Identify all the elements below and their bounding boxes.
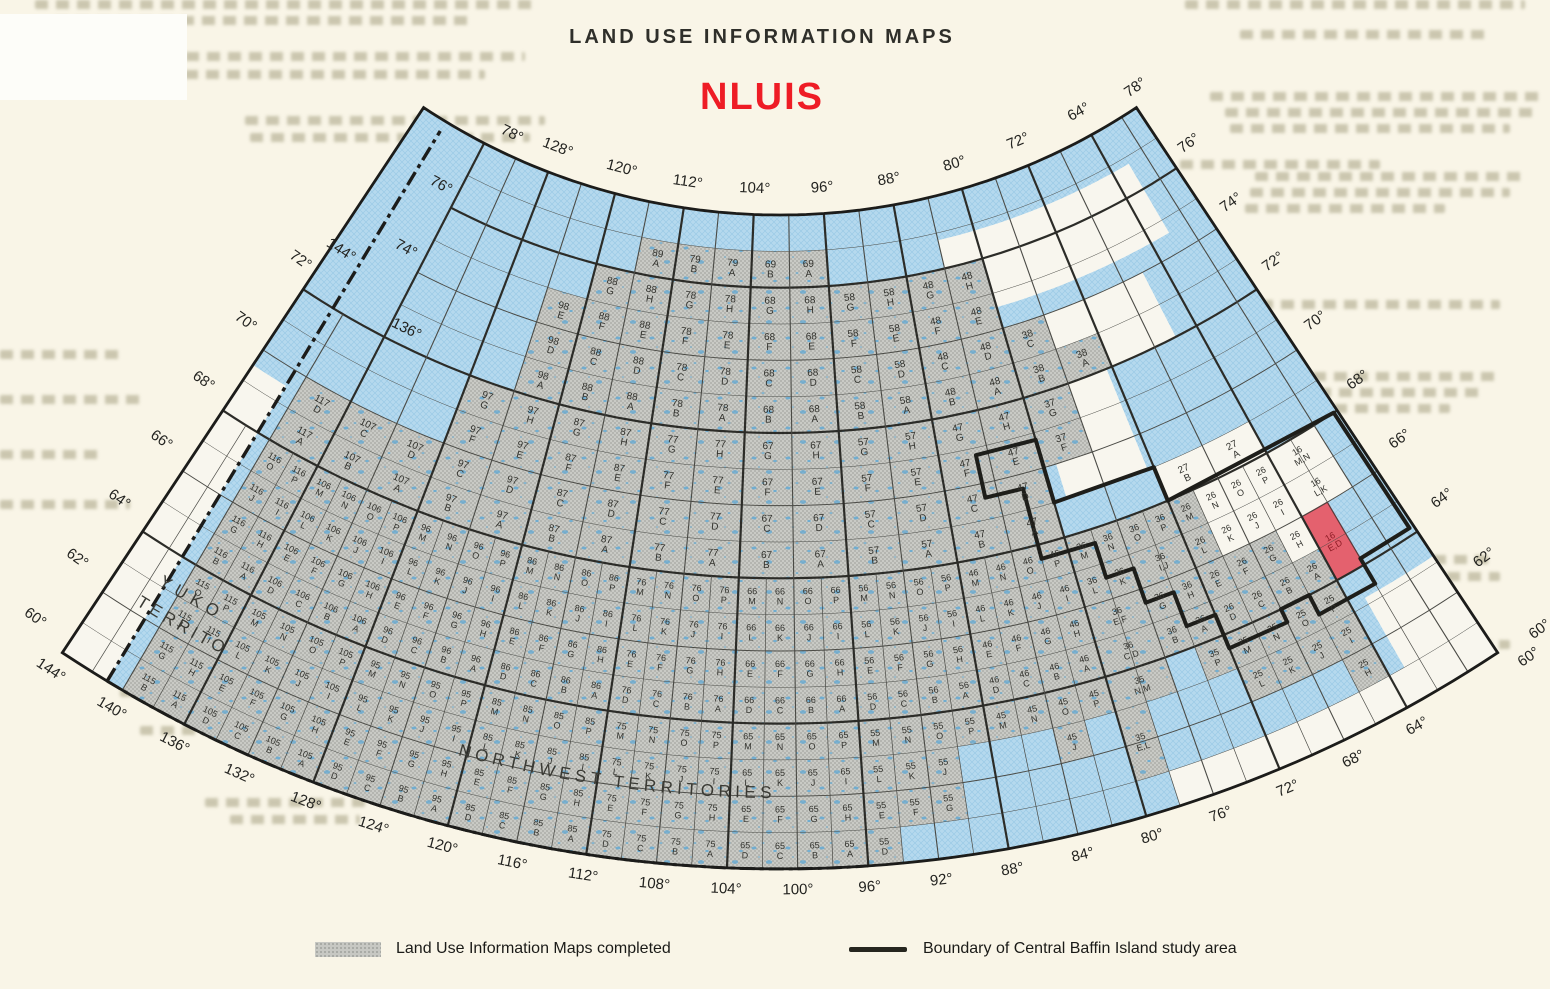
svg-text:116°: 116° (496, 851, 529, 874)
page-title: LAND USE INFORMATION MAPS (0, 26, 1524, 49)
svg-text:88°: 88° (1000, 859, 1025, 880)
svg-text:92°: 92° (929, 870, 954, 890)
svg-text:104°: 104° (739, 179, 771, 197)
svg-text:120°: 120° (425, 834, 459, 858)
svg-text:96°: 96° (810, 178, 834, 197)
svg-text:64°: 64° (1428, 485, 1456, 512)
svg-text:124°: 124° (356, 813, 391, 839)
svg-text:66°: 66° (1386, 426, 1414, 453)
svg-text:80°: 80° (941, 152, 968, 175)
svg-text:62°: 62° (1470, 544, 1498, 571)
svg-text:132°: 132° (222, 760, 257, 788)
svg-text:72°: 72° (1259, 248, 1287, 275)
map-acronym-title: NLUIS (0, 76, 1524, 119)
svg-text:120°: 120° (605, 156, 639, 180)
svg-text:74°: 74° (1217, 189, 1245, 216)
completed-swatch-icon (315, 942, 381, 957)
svg-text:76°: 76° (1175, 130, 1203, 157)
svg-text:66°: 66° (147, 426, 175, 453)
legend-completed-label: Land Use Information Maps completed (396, 940, 671, 958)
legend-boundary-label: Boundary of Central Baffin Island study … (923, 940, 1237, 958)
svg-text:72°: 72° (1004, 129, 1031, 153)
svg-text:112°: 112° (567, 864, 599, 885)
svg-text:76°: 76° (1207, 802, 1234, 826)
svg-text:68°: 68° (189, 367, 217, 394)
map-canvas: 115O115P115J115I115G115H115B115A105M105N… (0, 0, 1550, 989)
svg-text:62°: 62° (63, 545, 91, 572)
svg-text:140°: 140° (94, 693, 129, 723)
svg-text:88°: 88° (876, 169, 901, 190)
svg-text:64°: 64° (1403, 713, 1431, 739)
svg-text:60°: 60° (1526, 616, 1550, 643)
svg-text:78°: 78° (498, 121, 526, 146)
svg-text:112°: 112° (672, 171, 704, 192)
svg-text:60°: 60° (1514, 644, 1542, 671)
svg-text:144°: 144° (33, 654, 68, 685)
svg-text:70°: 70° (232, 308, 260, 335)
svg-text:128°: 128° (540, 134, 575, 161)
svg-text:128°: 128° (288, 788, 323, 815)
svg-text:64°: 64° (105, 486, 133, 513)
svg-text:80°: 80° (1139, 825, 1166, 848)
svg-text:108°: 108° (638, 874, 671, 894)
svg-text:136°: 136° (157, 728, 192, 757)
svg-text:84°: 84° (1070, 844, 1096, 866)
svg-text:68°: 68° (1339, 746, 1367, 771)
legend: Land Use Information Maps completed Boun… (0, 934, 1550, 974)
boundary-line-icon (849, 947, 907, 952)
svg-text:96°: 96° (858, 878, 882, 897)
svg-text:72°: 72° (286, 247, 314, 274)
svg-text:100°: 100° (782, 881, 813, 898)
svg-text:68°: 68° (1343, 366, 1371, 393)
svg-text:60°: 60° (21, 604, 49, 631)
scanned-map-page: 115O115P115J115I115G115H115B115A105M105N… (0, 0, 1550, 989)
svg-text:70°: 70° (1301, 307, 1329, 334)
svg-text:104°: 104° (710, 880, 742, 898)
svg-text:72°: 72° (1274, 776, 1301, 800)
